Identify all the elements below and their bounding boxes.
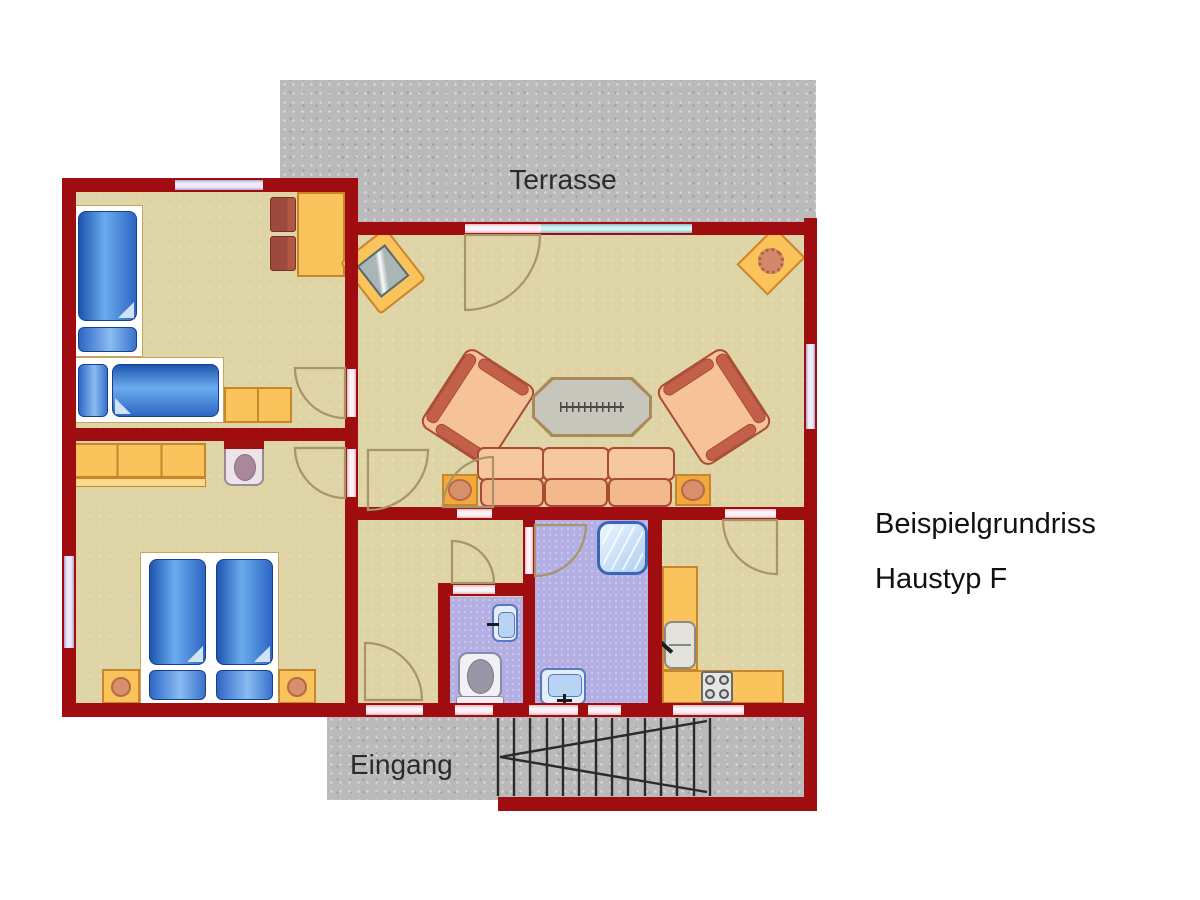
twin-beds [140, 552, 279, 704]
window [175, 180, 263, 190]
blanket-fold [118, 302, 134, 318]
desk-chair [270, 236, 296, 271]
mattress [216, 559, 273, 665]
door-opening-terrace [465, 224, 541, 233]
window [64, 556, 74, 648]
shower-glass [602, 526, 643, 570]
single-bed-vertical [72, 205, 143, 357]
door-opening-kitchen [725, 509, 776, 518]
wall [498, 797, 817, 811]
window [455, 705, 493, 715]
window [673, 705, 744, 715]
stove [701, 671, 733, 703]
door-opening-wc [453, 585, 495, 594]
pillow [149, 670, 206, 700]
pillow [78, 364, 108, 417]
vanity-sink [224, 441, 264, 486]
window [588, 705, 621, 715]
lamp [111, 677, 131, 697]
lamp [448, 479, 472, 501]
side-table-left [442, 474, 478, 506]
window [529, 705, 578, 715]
door-opening-hall [457, 509, 492, 518]
nightstand [278, 669, 316, 704]
toilet-bowl [467, 659, 494, 694]
terrace-area [280, 80, 816, 222]
dresser [224, 387, 292, 423]
nightstand [102, 669, 140, 704]
mattress [112, 364, 219, 417]
plan-title-line1: Beispielgrundriss [875, 508, 1096, 541]
burner [705, 675, 715, 685]
vanity-backsplash [224, 441, 264, 449]
wardrobe [73, 443, 206, 478]
sink-divider [669, 644, 691, 646]
floor-plan-canvas: Terrasse Eingang Beispielgrundriss Haust… [0, 0, 1200, 900]
wardrobe-front [73, 478, 206, 487]
window-terrace [541, 224, 692, 233]
sofa-back-cushion [607, 447, 675, 481]
door-opening-bedroom-2 [347, 449, 356, 497]
wall [648, 520, 662, 703]
wall [438, 583, 450, 703]
sofa-back-cushion [477, 447, 545, 481]
door-opening-bathroom [525, 527, 533, 574]
faucet [557, 699, 572, 702]
burner [705, 689, 715, 699]
wall [345, 178, 358, 717]
wc-sink [492, 604, 518, 642]
sink-bowl [498, 612, 515, 638]
plan-title-line2: Haustyp F [875, 563, 1007, 596]
shower [597, 521, 648, 575]
desk [297, 192, 345, 277]
burner [719, 675, 729, 685]
door-opening-bedroom-1 [347, 369, 356, 417]
kitchen-sink [664, 621, 696, 669]
door-opening-entrance [366, 705, 423, 715]
tv-screen [357, 244, 410, 298]
bed-chest [78, 327, 137, 352]
blanket-fold [187, 646, 203, 662]
sofa [477, 447, 675, 507]
lamp [681, 479, 705, 501]
desk-chair [270, 197, 296, 232]
plant [753, 243, 790, 280]
bathroom-sink [540, 668, 586, 705]
entrance-label: Eingang [350, 749, 453, 781]
single-bed-horizontal [72, 357, 224, 423]
window [806, 344, 815, 429]
burner [719, 689, 729, 699]
sofa-back-cushion [542, 447, 610, 481]
blanket-fold [115, 398, 131, 414]
mattress [149, 559, 206, 665]
wall [62, 428, 358, 441]
mattress [78, 211, 137, 321]
sofa-seat-cushion [480, 478, 544, 507]
sofa-seat-cushion [544, 478, 608, 507]
lamp [287, 677, 307, 697]
side-table-right [675, 474, 711, 506]
table-decor [560, 402, 624, 412]
toilet [458, 652, 502, 700]
sofa-seat-cushion [608, 478, 672, 507]
terrace-label: Terrasse [478, 164, 648, 196]
blanket-fold [254, 646, 270, 662]
pillow [216, 670, 273, 700]
coffee-table [532, 377, 652, 437]
sink-bowl [234, 454, 256, 481]
faucet [487, 623, 499, 626]
